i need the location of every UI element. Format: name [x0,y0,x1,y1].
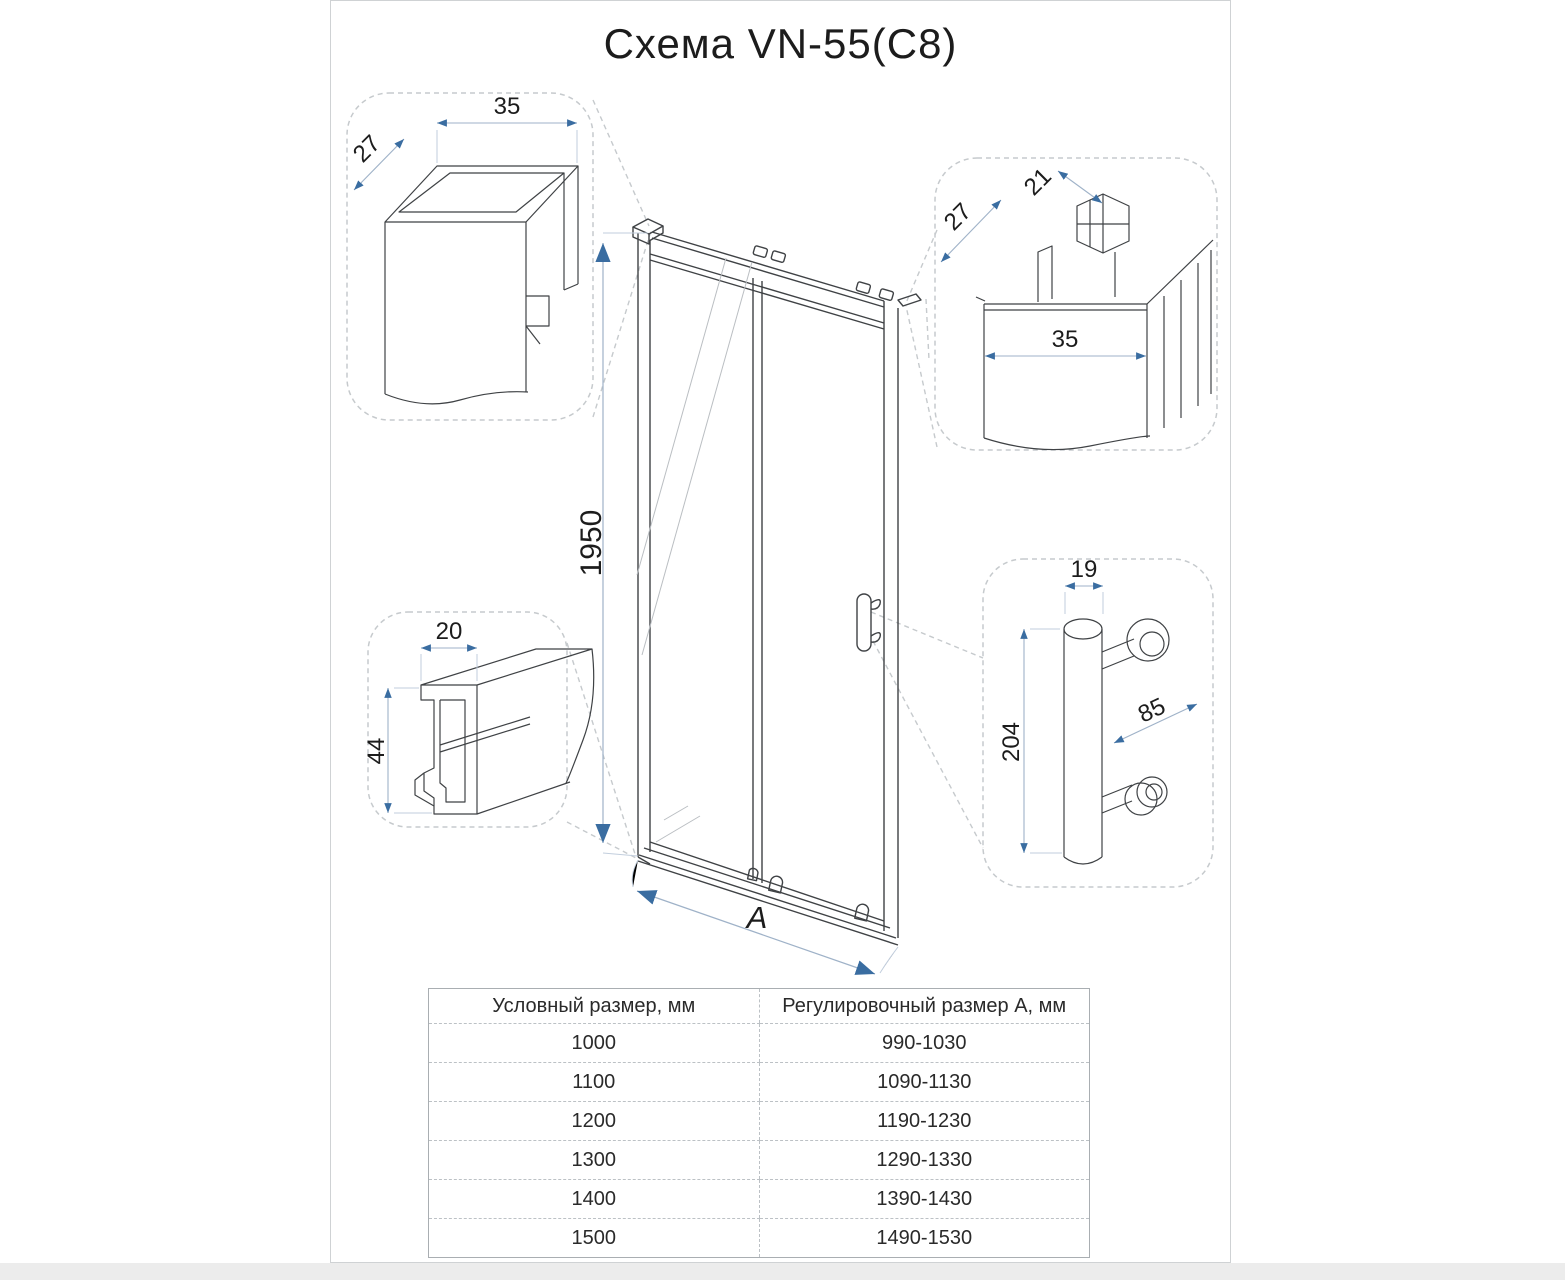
size-table-cell: 1190-1230 [759,1102,1090,1141]
glass-reflections [637,258,752,842]
left-stile-cap [633,219,663,234]
top-rail [650,232,884,329]
size-table-cell: 1200 [429,1102,760,1141]
size-table-cell: 1490-1530 [759,1219,1090,1258]
right-stile-cap [898,294,921,306]
main-dimensions: 1950 A [575,233,898,974]
main-door-drawing [633,219,921,945]
size-table-row: 15001490-1530 [429,1219,1090,1258]
detail-wall-profile-left: 35 27 [348,93,578,404]
detail-left-dim-35: 35 [494,93,521,120]
size-table-cell: 1390-1430 [759,1180,1090,1219]
detail-handle-dim-204: 204 [998,722,1025,762]
size-table-cell: 1000 [429,1024,760,1063]
size-table-cell: 1500 [429,1219,760,1258]
size-table-row: 14001390-1430 [429,1180,1090,1219]
width-dim-label: A [745,900,768,935]
detail-left-dim-27: 27 [348,130,386,168]
detail-rail-dim-44: 44 [363,738,390,765]
panel-divider [753,278,762,883]
bottom-rail-band [638,842,898,945]
size-table-row: 1000990-1030 [429,1024,1090,1063]
size-table-cell: 1290-1330 [759,1141,1090,1180]
height-dim-label: 1950 [575,510,608,577]
size-table-cell: 1090-1130 [759,1063,1090,1102]
size-table-body: 1000990-103011001090-113012001190-123013… [429,1024,1090,1258]
size-table-row: 13001290-1330 [429,1141,1090,1180]
size-table-header-nominal: Условный размер, мм [429,989,760,1024]
size-table-row: 12001190-1230 [429,1102,1090,1141]
size-table-header-row: Условный размер, мм Регулировочный разме… [429,989,1090,1024]
detail-bottom-rail: 20 44 [363,618,594,814]
schematic-canvas: Схема VN-55(C8) [0,0,1565,1280]
size-table-cell: 1100 [429,1063,760,1102]
bubble-wall-profile-left [347,93,593,420]
detail-right-dim-21: 21 [1019,163,1057,201]
size-table-row: 11001090-1130 [429,1063,1090,1102]
size-table-cell: 1300 [429,1141,760,1180]
detail-handle-dim-19: 19 [1071,556,1098,583]
bubble-bottom-rail [368,612,567,827]
detail-handle: 19 204 85 [998,556,1197,864]
detail-right-dim-35: 35 [1052,326,1079,353]
detail-rail-dim-20: 20 [436,618,463,645]
door-handle [857,594,880,651]
size-table-header-adjust: Регулировочный размер А, мм [759,989,1090,1024]
detail-handle-dim-85: 85 [1134,693,1170,729]
size-table-cell: 990-1030 [759,1024,1090,1063]
top-rollers [753,246,894,301]
leader-lines [567,100,983,858]
size-table: Условный размер, мм Регулировочный разме… [428,988,1090,1258]
size-table-cell: 1400 [429,1180,760,1219]
detail-wall-profile-right: 35 27 21 [939,163,1213,450]
